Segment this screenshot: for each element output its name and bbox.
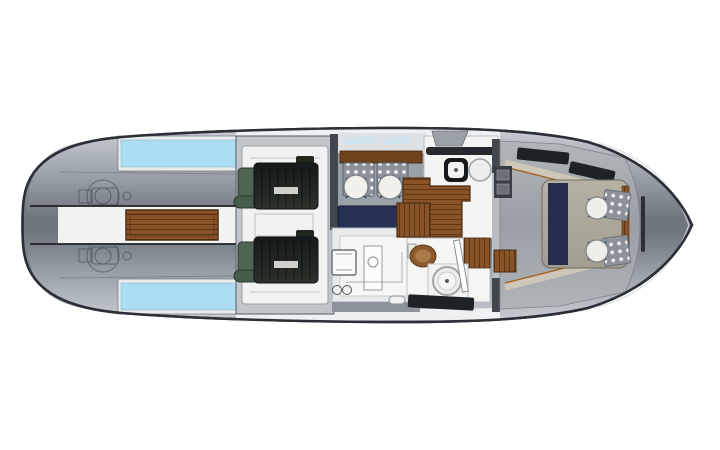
bulkhead-engine-room: [330, 134, 338, 230]
dresser-drawer-2: [497, 184, 509, 194]
deck-cleat: [389, 296, 405, 304]
yacht-deck-plan-canvas: [0, 0, 720, 450]
cabin-stool-1: [586, 197, 608, 219]
round-basin: [469, 159, 491, 181]
head-compartment: [407, 238, 490, 302]
round-table-2: [378, 175, 402, 199]
burner-knob-1: [333, 286, 342, 295]
forward-cabin: [492, 139, 640, 312]
vent-hatch: [432, 131, 468, 146]
berth-navy-runner: [548, 183, 568, 265]
anchor-locker-line: [641, 196, 645, 252]
wood-shelf: [340, 151, 422, 163]
sink-drain: [454, 168, 458, 172]
engine-room: [234, 136, 334, 314]
companionway-steps: [397, 203, 430, 237]
head-sink-drain: [445, 279, 449, 283]
center-walkway: [30, 206, 240, 244]
locker-outline: [364, 246, 382, 290]
window-glass-streak: [344, 136, 376, 144]
fiddle-rail: [426, 147, 496, 155]
cabin-stool-2: [586, 240, 608, 262]
window-glass-streak: [384, 137, 410, 145]
cabin-entry-step: [494, 250, 516, 272]
toilet-lid-inner: [415, 250, 431, 263]
dresser-drawer-1: [497, 170, 509, 180]
burner-knob-2: [343, 286, 352, 295]
side-deck-strip: [332, 302, 420, 312]
round-table-1: [344, 175, 368, 199]
cabin-bulkhead-bottom: [492, 278, 500, 312]
